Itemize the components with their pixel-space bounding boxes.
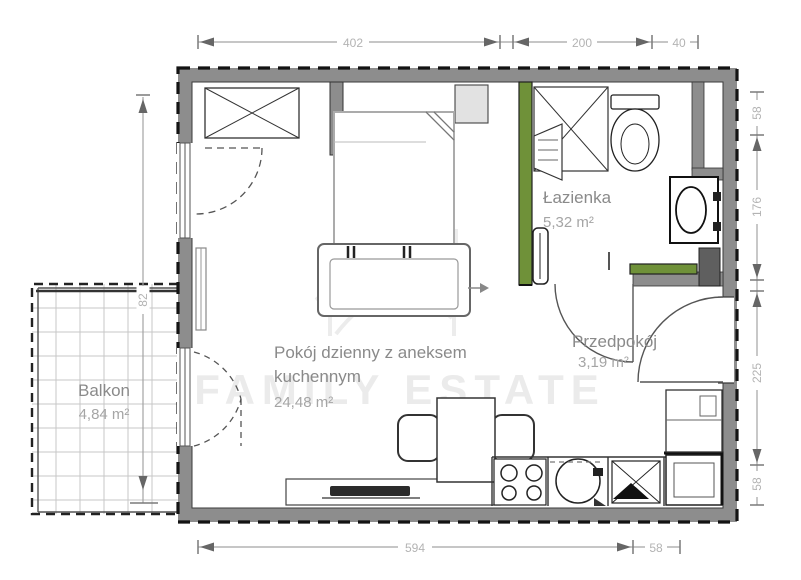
bathroom-right-wall <box>692 82 704 170</box>
table <box>437 398 495 482</box>
wall-stub-bed-niche <box>455 85 488 123</box>
tv-sideboard <box>286 479 500 505</box>
washbasin <box>670 177 721 243</box>
dim-top-402: 402 <box>343 36 363 50</box>
floor-plan-page: FAMILY ESTATE <box>0 0 801 580</box>
hallway-name: Przedpokój <box>572 332 657 351</box>
dim-right-225: 225 <box>750 363 764 383</box>
hall-cabinet <box>666 390 722 452</box>
toilet <box>611 95 659 171</box>
sofa <box>318 244 489 316</box>
watermark-text: FAMILY ESTATE <box>194 366 606 413</box>
living-room-name-line1: Pokój dzienny z aneksem <box>274 343 467 362</box>
bathroom-green-wall <box>519 82 532 285</box>
dim-right-58a: 58 <box>750 106 764 120</box>
bathroom-area: 5,32 m² <box>543 214 594 231</box>
entrance-opening <box>718 297 734 383</box>
balcony-name: Balkon <box>78 381 130 400</box>
balcony-area: 4,84 m² <box>79 406 130 423</box>
chair-right <box>492 415 534 461</box>
dim-right-176: 176 <box>750 197 764 217</box>
cabinet-x <box>612 461 660 503</box>
living-room-name-line2: kuchennym <box>274 367 361 386</box>
fridge-corner-unit <box>664 453 722 505</box>
bathroom-radiator <box>533 228 548 284</box>
bathroom-name: Łazienka <box>543 188 612 207</box>
dim-top-200: 200 <box>572 36 592 50</box>
hallway-area: 3,19 m² <box>578 354 629 371</box>
living-room-area: 24,48 m² <box>274 394 333 411</box>
room-radiator <box>196 248 206 330</box>
dim-top-40: 40 <box>672 36 686 50</box>
dim-bottom-594: 594 <box>405 541 425 555</box>
dim-left-82: 82 <box>136 293 150 307</box>
bed <box>334 112 454 258</box>
shower <box>534 87 608 180</box>
bathroom-shaft-unit <box>699 248 720 286</box>
chair-left <box>398 415 440 461</box>
wardrobe <box>205 88 299 138</box>
stove <box>494 459 546 505</box>
bathroom-green-sill <box>630 264 697 274</box>
dim-bottom-58: 58 <box>649 541 663 555</box>
floor-plan-drawing: FAMILY ESTATE <box>0 0 801 580</box>
tv <box>330 486 410 496</box>
left-window <box>177 143 193 238</box>
balcony-door-opening <box>177 348 193 446</box>
dim-right-58b: 58 <box>750 477 764 491</box>
